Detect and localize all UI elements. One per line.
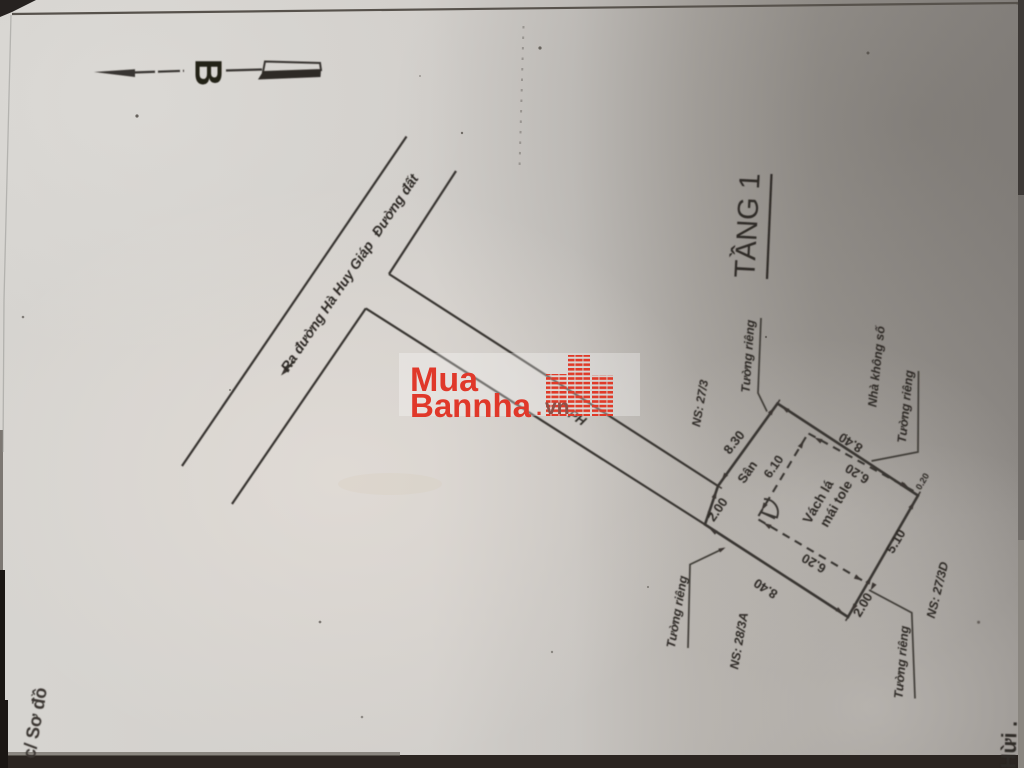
svg-text:Hừi .: Hừi . [997, 720, 1022, 768]
svg-text:vn: vn [545, 396, 570, 419]
svg-text:.: . [536, 395, 542, 420]
svg-text:TẦNG 1: TẦNG 1 [727, 172, 766, 278]
svg-text:B: B [187, 59, 229, 86]
svg-text:Bannha: Bannha [410, 387, 532, 424]
